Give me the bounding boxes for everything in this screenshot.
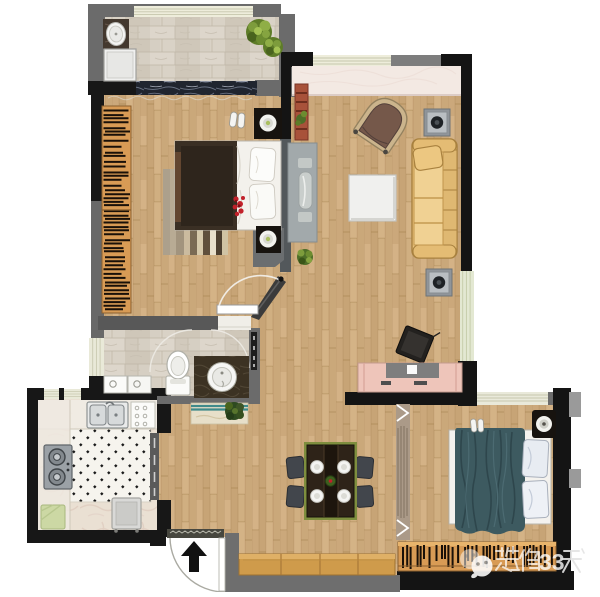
svg-text:33: 33 — [539, 549, 565, 575]
